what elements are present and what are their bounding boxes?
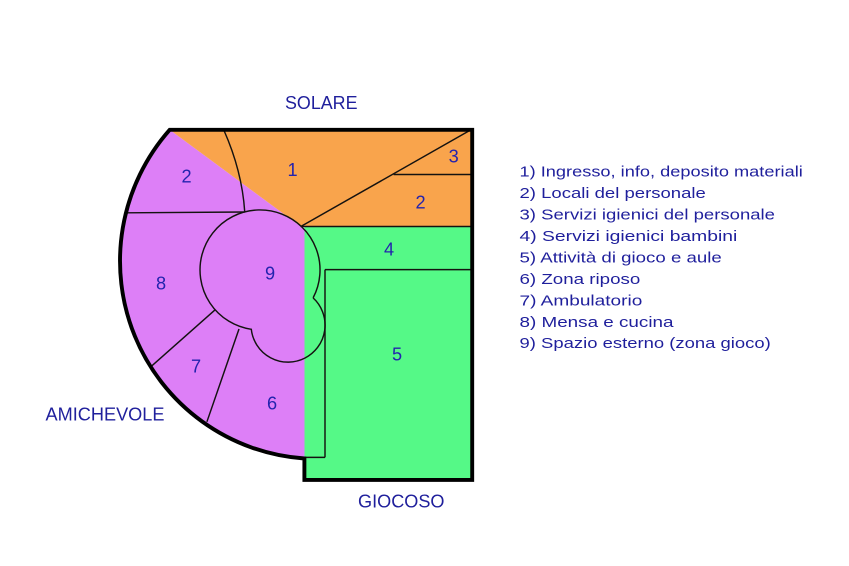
svg-text:AMICHEVOLE: AMICHEVOLE xyxy=(46,405,165,425)
svg-text:2: 2 xyxy=(415,193,425,213)
svg-text:4) Servizi igienici bambini: 4) Servizi igienici bambini xyxy=(520,228,738,245)
svg-text:5: 5 xyxy=(392,345,402,365)
svg-text:2: 2 xyxy=(181,167,191,187)
svg-text:9: 9 xyxy=(265,264,275,284)
svg-text:SOLARE: SOLARE xyxy=(285,93,358,113)
svg-text:9) Spazio esterno (zona gioco): 9) Spazio esterno (zona gioco) xyxy=(520,335,771,352)
svg-text:6) Zona riposo: 6) Zona riposo xyxy=(520,271,641,288)
svg-text:5) Attività di gioco e aule: 5) Attività di gioco e aule xyxy=(520,249,722,266)
svg-text:8) Mensa e cucina: 8) Mensa e cucina xyxy=(520,314,675,331)
svg-text:7) Ambulatorio: 7) Ambulatorio xyxy=(520,292,643,309)
svg-text:3: 3 xyxy=(449,147,459,167)
svg-text:GIOCOSO: GIOCOSO xyxy=(358,492,445,512)
svg-text:6: 6 xyxy=(267,394,277,414)
svg-text:4: 4 xyxy=(384,240,394,260)
svg-text:7: 7 xyxy=(191,357,201,377)
svg-text:1: 1 xyxy=(287,160,297,180)
svg-text:2) Locali del personale: 2) Locali del personale xyxy=(520,185,706,202)
svg-text:3) Servizi igienici del person: 3) Servizi igienici del personale xyxy=(520,207,776,224)
svg-text:8: 8 xyxy=(156,274,166,294)
svg-text:1) Ingresso, info, deposito ma: 1) Ingresso, info, deposito materiali xyxy=(520,164,803,181)
